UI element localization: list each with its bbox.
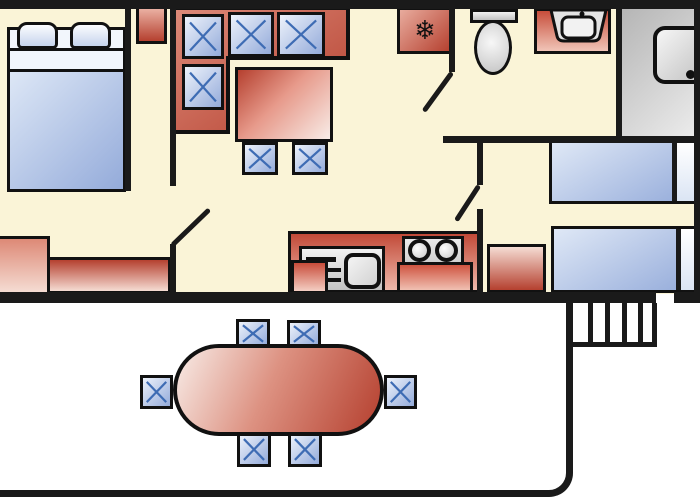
step-divider: [588, 303, 593, 342]
sofa-cushion: [182, 64, 224, 110]
sofa-cushion: [182, 14, 224, 59]
fridge: ❄: [397, 7, 453, 54]
hall-cabinet: [487, 244, 546, 293]
dining-table: [235, 67, 333, 142]
single-bed: [551, 226, 699, 293]
toilet-bowl: [474, 20, 512, 75]
pillow: [70, 22, 111, 49]
x-mark-icon: [239, 322, 267, 345]
tall-cabinet: [0, 236, 50, 295]
wall-twin-bedroom: [477, 143, 483, 185]
burner-icon: [408, 239, 431, 262]
x-mark-icon: [291, 435, 319, 464]
x-mark-icon: [387, 378, 414, 406]
bed-divider: [672, 143, 677, 201]
terrace-chair: [288, 432, 322, 467]
wall-bottom: [674, 292, 700, 303]
x-mark-icon: [245, 145, 275, 172]
base-cabinet: [397, 262, 473, 293]
wall-master-closet: [125, 8, 131, 191]
x-mark-icon: [280, 15, 322, 54]
dining-chair: [242, 142, 278, 175]
wall-wc: [449, 8, 455, 72]
wall-corridor: [443, 136, 700, 143]
wall-bottom: [0, 292, 656, 303]
sofa-cushion: [228, 12, 274, 57]
wardrobe: [136, 6, 167, 44]
x-mark-icon: [240, 435, 268, 464]
terrace-chair: [237, 432, 271, 467]
faucet-dot-icon: [580, 12, 585, 17]
x-mark-icon: [185, 17, 221, 56]
terrace-chair: [140, 375, 173, 409]
terrace-chair: [384, 375, 417, 409]
step-divider: [622, 303, 627, 342]
drainer-line: [328, 278, 341, 282]
floor-plan: ❄: [0, 0, 700, 500]
garden-table: [173, 344, 384, 436]
x-mark-icon: [185, 67, 221, 107]
pillow: [17, 22, 58, 49]
burner-icon: [435, 239, 458, 262]
wall-top: [0, 0, 700, 9]
wall-master-bedroom: [170, 8, 176, 186]
wall-right: [694, 0, 700, 302]
wall-twin-bedroom: [477, 209, 483, 293]
drainer-line: [328, 268, 341, 272]
base-cabinet: [291, 260, 328, 294]
x-mark-icon: [143, 378, 170, 406]
washbasin: [548, 8, 610, 46]
sofa-cushion: [277, 12, 325, 57]
entrance-steps: [573, 303, 657, 347]
sink-basin: [344, 253, 381, 289]
shower-tray: [653, 26, 700, 84]
dining-chair: [292, 142, 328, 175]
double-bed: [7, 27, 126, 192]
wall-shower: [616, 8, 622, 139]
step-divider: [638, 303, 643, 342]
x-mark-icon: [231, 15, 271, 54]
x-mark-icon: [290, 323, 318, 345]
bed-blanket: [10, 69, 123, 189]
x-mark-icon: [295, 145, 325, 172]
low-cabinet: [47, 257, 171, 294]
snowflake-icon: ❄: [414, 18, 436, 44]
single-bed: [549, 140, 699, 204]
step-divider: [605, 303, 610, 342]
bed-divider: [676, 229, 681, 290]
wall-master-bedroom: [170, 244, 176, 293]
